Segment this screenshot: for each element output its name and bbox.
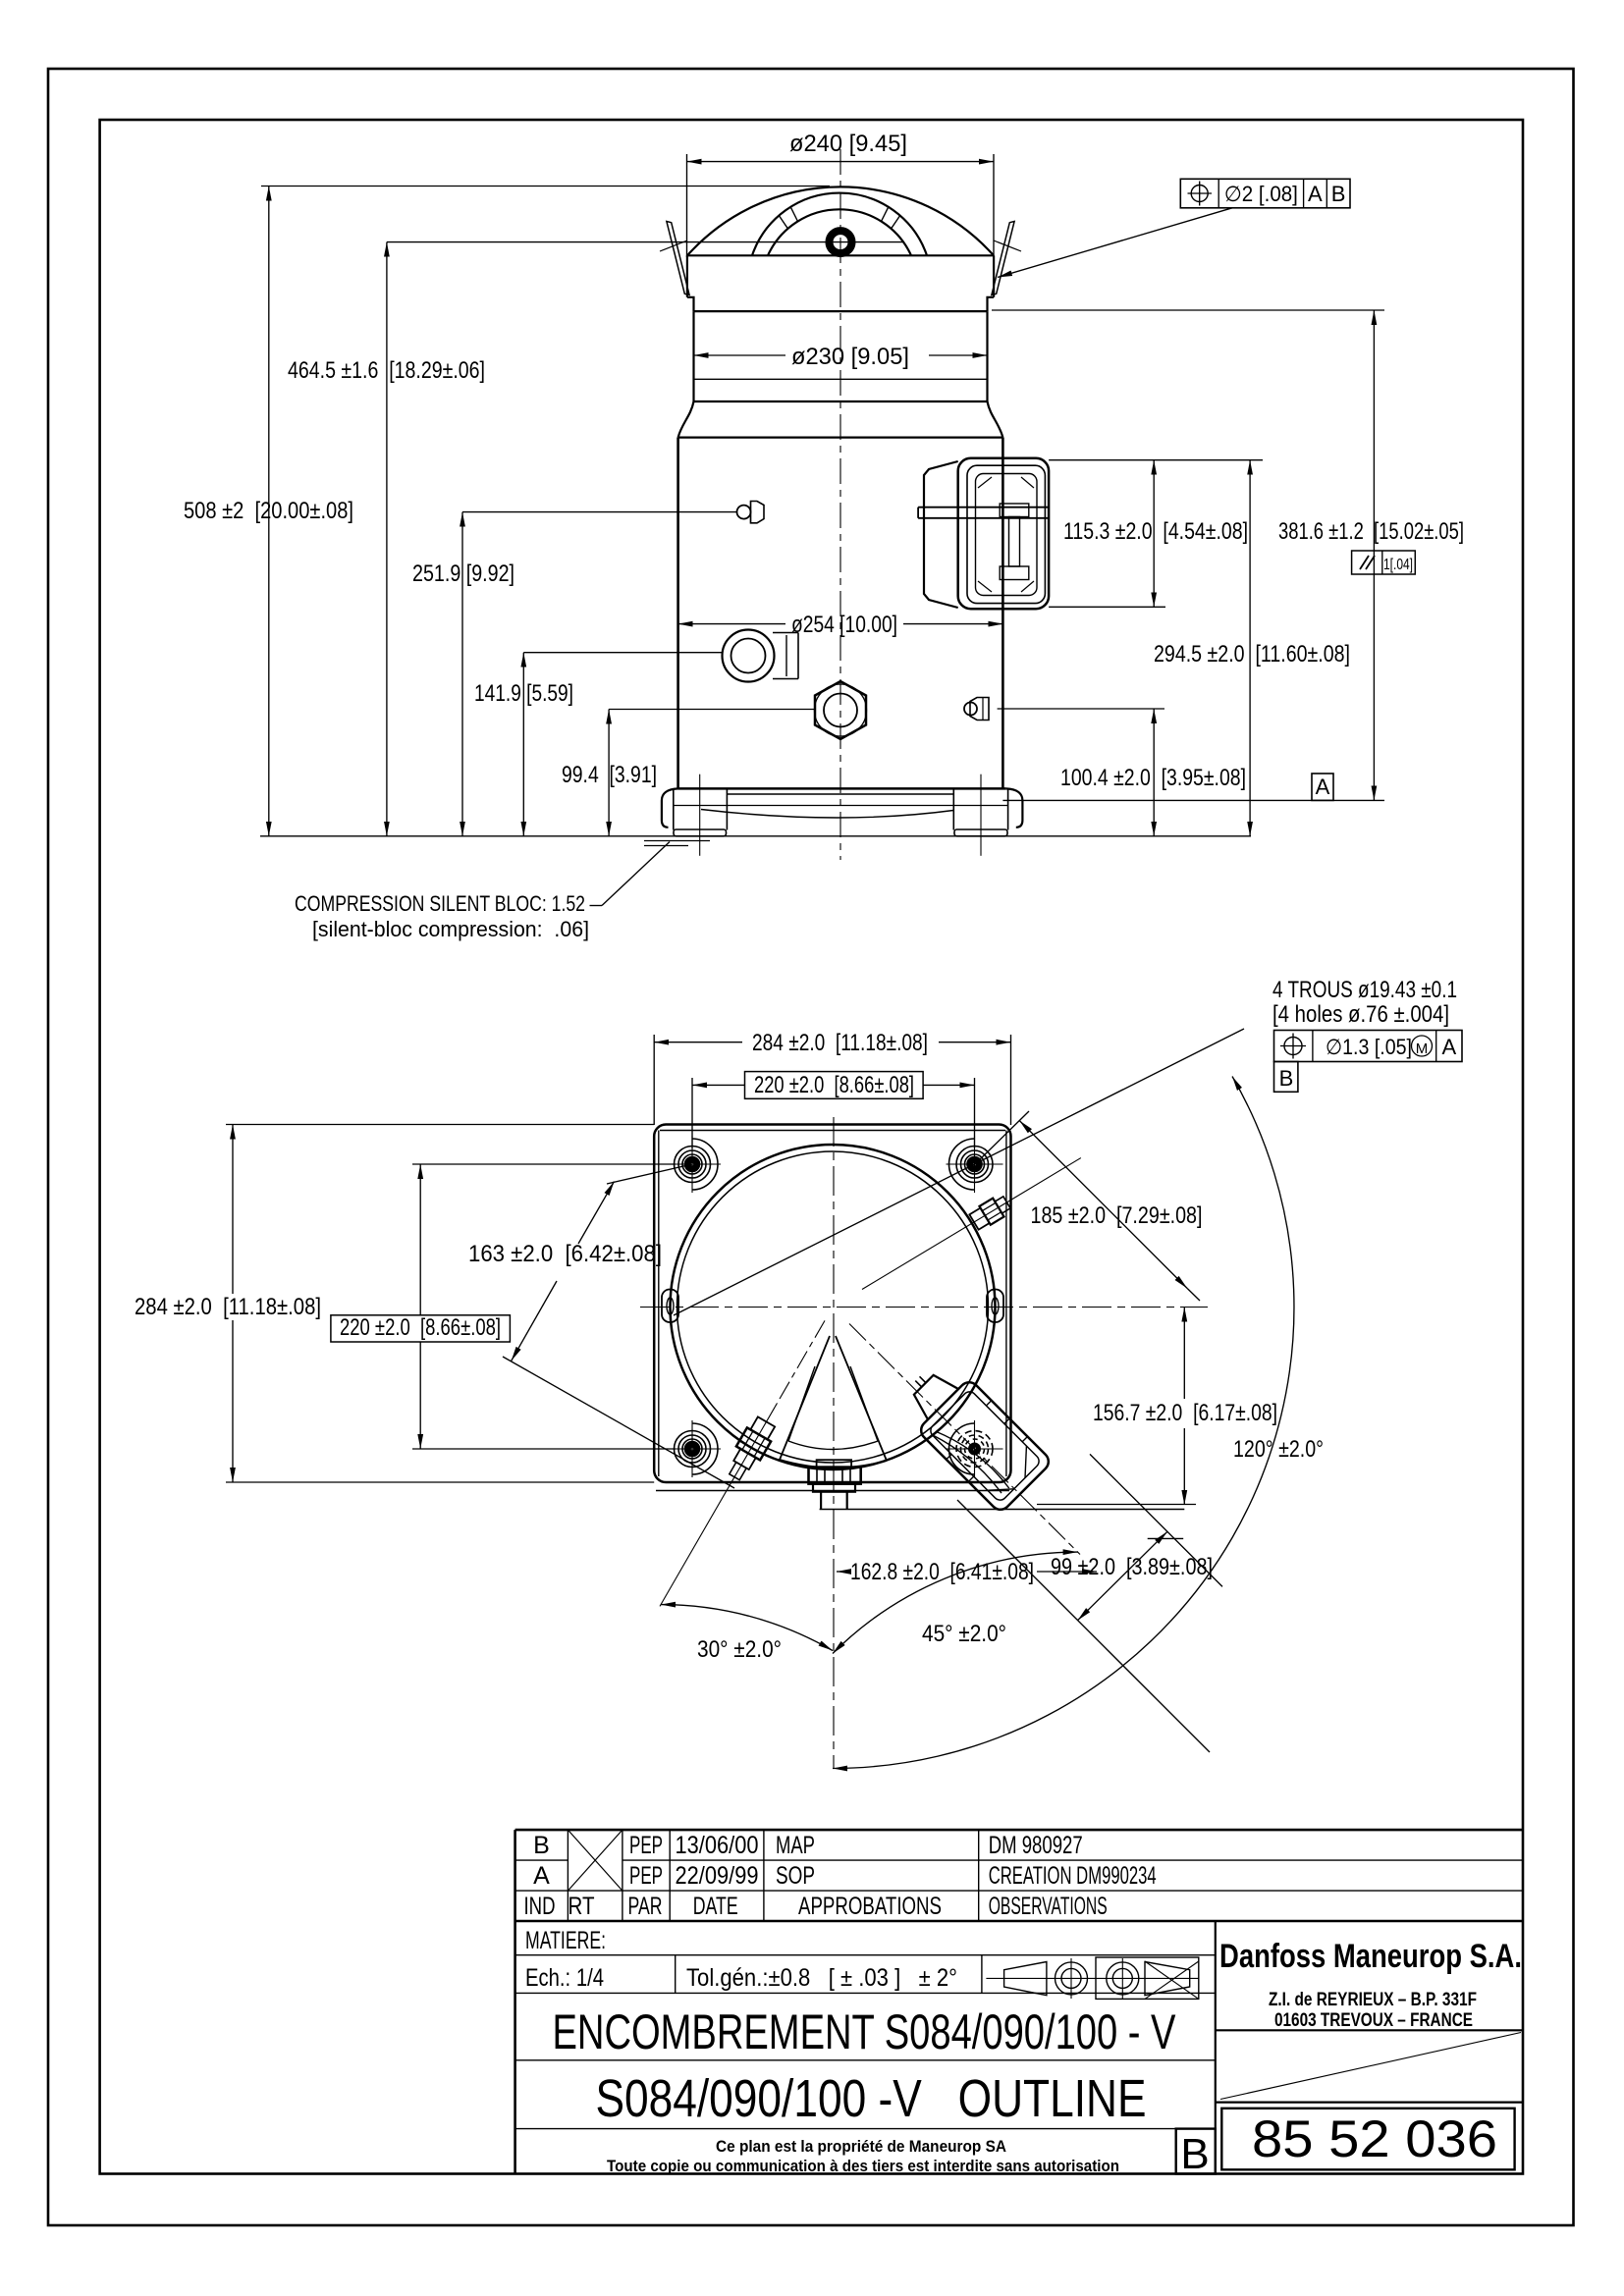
- svg-text:[silent-bloc compression: .06: [silent-bloc compression: .06]: [312, 917, 589, 941]
- svg-text:85 52 036: 85 52 036: [1252, 2110, 1497, 2168]
- svg-text:22/09/99: 22/09/99: [676, 1862, 759, 1890]
- svg-text:B: B: [1331, 182, 1346, 206]
- svg-text:A: A: [1316, 774, 1330, 799]
- svg-text:B: B: [533, 1832, 550, 1859]
- svg-text:Tol.gén.:±0.8 [ ± .03 ] ±: Tol.gén.:±0.8 [ ± .03 ] ± 2°: [686, 1964, 957, 1992]
- svg-text:45° ±2.0°: 45° ±2.0°: [922, 1621, 1006, 1647]
- svg-text:PAR: PAR: [628, 1893, 663, 1920]
- svg-text:∅2 [.08]: ∅2 [.08]: [1224, 182, 1298, 206]
- svg-text:OBSERVATIONS: OBSERVATIONS: [989, 1893, 1108, 1920]
- svg-text:284 ±2.0 [11.18±.08]: 284 ±2.0 [11.18±.08]: [752, 1030, 928, 1056]
- svg-text:141.9 [5.59]: 141.9 [5.59]: [474, 680, 573, 707]
- svg-text:156.7 ±2.0 [6.17±.08]: 156.7 ±2.0 [6.17±.08]: [1093, 1400, 1277, 1426]
- svg-text:DM 980927: DM 980927: [989, 1832, 1083, 1859]
- svg-text:DATE: DATE: [693, 1893, 738, 1920]
- svg-text:CREATION DM990234: CREATION DM990234: [989, 1862, 1157, 1890]
- svg-text:294.5 ±2.0 [11.60±.08]: 294.5 ±2.0 [11.60±.08]: [1154, 641, 1350, 667]
- svg-text:30° ±2.0°: 30° ±2.0°: [697, 1636, 782, 1663]
- svg-text:Danfoss Maneurop S.A.: Danfoss Maneurop S.A.: [1219, 1938, 1522, 1975]
- svg-text:01603 TREVOUX – FRANCE: 01603 TREVOUX – FRANCE: [1274, 2010, 1473, 2031]
- svg-text:MAP: MAP: [776, 1832, 815, 1859]
- svg-text:162.8 ±2.0 [6.41±.08]: 162.8 ±2.0 [6.41±.08]: [850, 1559, 1034, 1585]
- svg-text:∅1.3 [.05]: ∅1.3 [.05]: [1326, 1035, 1412, 1059]
- svg-text:[4 holes ø.76 ±.004]: [4 holes ø.76 ±.004]: [1272, 1001, 1449, 1028]
- svg-text:ø230 [9.05]: ø230 [9.05]: [791, 344, 909, 370]
- svg-text:IND: IND: [524, 1893, 556, 1920]
- svg-text:284 ±2.0 [11.18±.08]: 284 ±2.0 [11.18±.08]: [135, 1294, 321, 1320]
- svg-text:508 ±2 [20.00±.08]: 508 ±2 [20.00±.08]: [184, 498, 353, 524]
- svg-text:185 ±2.0 [7.29±.08]: 185 ±2.0 [7.29±.08]: [1031, 1202, 1203, 1229]
- svg-text:A: A: [533, 1862, 550, 1890]
- svg-text:A: A: [1308, 182, 1323, 206]
- svg-text:ENCOMBREMENT S084/090/100 - V: ENCOMBREMENT S084/090/100 - V: [553, 2004, 1176, 2059]
- svg-text:4 TROUS ø19.43 ±0.1: 4 TROUS ø19.43 ±0.1: [1272, 977, 1457, 1003]
- svg-text:Ech.: 1/4: Ech.: 1/4: [525, 1964, 604, 1992]
- svg-text:A: A: [1441, 1035, 1456, 1059]
- svg-text:381.6 ±1.2 [15.02±.05]: 381.6 ±1.2 [15.02±.05]: [1278, 518, 1464, 545]
- svg-text:Ce plan est la propriété de Ma: Ce plan est la propriété de Maneurop SA: [716, 2137, 1006, 2156]
- svg-text:100.4 ±2.0 [3.95±.08]: 100.4 ±2.0 [3.95±.08]: [1060, 765, 1246, 791]
- svg-text:PEP: PEP: [629, 1832, 663, 1859]
- svg-text:120° ±2.0°: 120° ±2.0°: [1233, 1436, 1324, 1463]
- svg-text:220 ±2.0 [8.66±.08]: 220 ±2.0 [8.66±.08]: [340, 1314, 501, 1341]
- svg-text:ø240 [9.45]: ø240 [9.45]: [789, 131, 907, 157]
- svg-text:M: M: [1416, 1041, 1429, 1057]
- svg-text:Toute copie ou communication à: Toute copie ou communication à des tiers…: [607, 2157, 1119, 2175]
- svg-text:251.9 [9.92]: 251.9 [9.92]: [412, 561, 514, 587]
- svg-text:APPROBATIONS: APPROBATIONS: [798, 1893, 942, 1920]
- svg-text:464.5 ±1.6 [18.29±.06]: 464.5 ±1.6 [18.29±.06]: [288, 357, 485, 384]
- svg-text:Z.I. de REYRIEUX – B.P. 331F: Z.I. de REYRIEUX – B.P. 331F: [1269, 1990, 1477, 2010]
- svg-text:13/06/00: 13/06/00: [676, 1832, 759, 1859]
- svg-text:163 ±2.0 [6.42±.08]: 163 ±2.0 [6.42±.08]: [468, 1241, 662, 1267]
- svg-text:COMPRESSION SILENT BLOC: 1.52: COMPRESSION SILENT BLOC: 1.52: [295, 891, 585, 916]
- svg-text:115.3 ±2.0 [4.54±.08]: 115.3 ±2.0 [4.54±.08]: [1063, 518, 1248, 545]
- svg-text:MATIERE:: MATIERE:: [525, 1927, 606, 1954]
- svg-text:B: B: [1180, 2130, 1209, 2178]
- svg-text:220 ±2.0 [8.66±.08]: 220 ±2.0 [8.66±.08]: [754, 1072, 914, 1098]
- svg-text:99 ±2.0 [3.89±.08]: 99 ±2.0 [3.89±.08]: [1051, 1554, 1213, 1580]
- svg-text:S084/090/100 -V OUTLINE: S084/090/100 -V OUTLINE: [596, 2069, 1147, 2128]
- svg-text:RT: RT: [568, 1893, 595, 1920]
- svg-text:ø254 [10.00]: ø254 [10.00]: [791, 612, 897, 638]
- svg-text:1[.04]: 1[.04]: [1383, 557, 1413, 573]
- svg-text:99.4 [3.91]: 99.4 [3.91]: [562, 762, 657, 788]
- svg-text:PEP: PEP: [629, 1862, 663, 1890]
- svg-text:B: B: [1279, 1066, 1294, 1091]
- svg-text:SOP: SOP: [776, 1862, 815, 1890]
